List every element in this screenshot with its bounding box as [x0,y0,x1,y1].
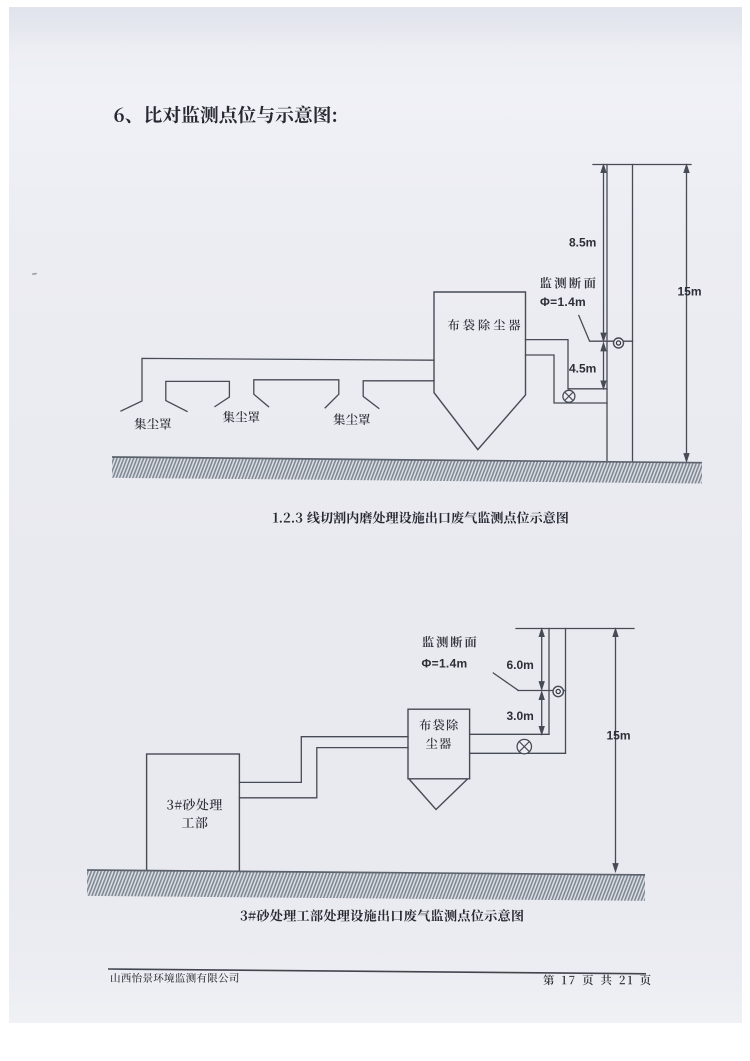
svg-text:Φ=1.4m: Φ=1.4m [422,657,468,671]
svg-text:15m: 15m [678,285,702,299]
svg-text:3.0m: 3.0m [507,709,534,723]
svg-text:4.5m: 4.5m [569,362,596,376]
svg-text:8.5m: 8.5m [569,236,596,250]
svg-text:6.0m: 6.0m [507,658,534,672]
svg-text:15m: 15m [607,729,631,743]
svg-text:Φ=1.4m: Φ=1.4m [540,295,586,309]
